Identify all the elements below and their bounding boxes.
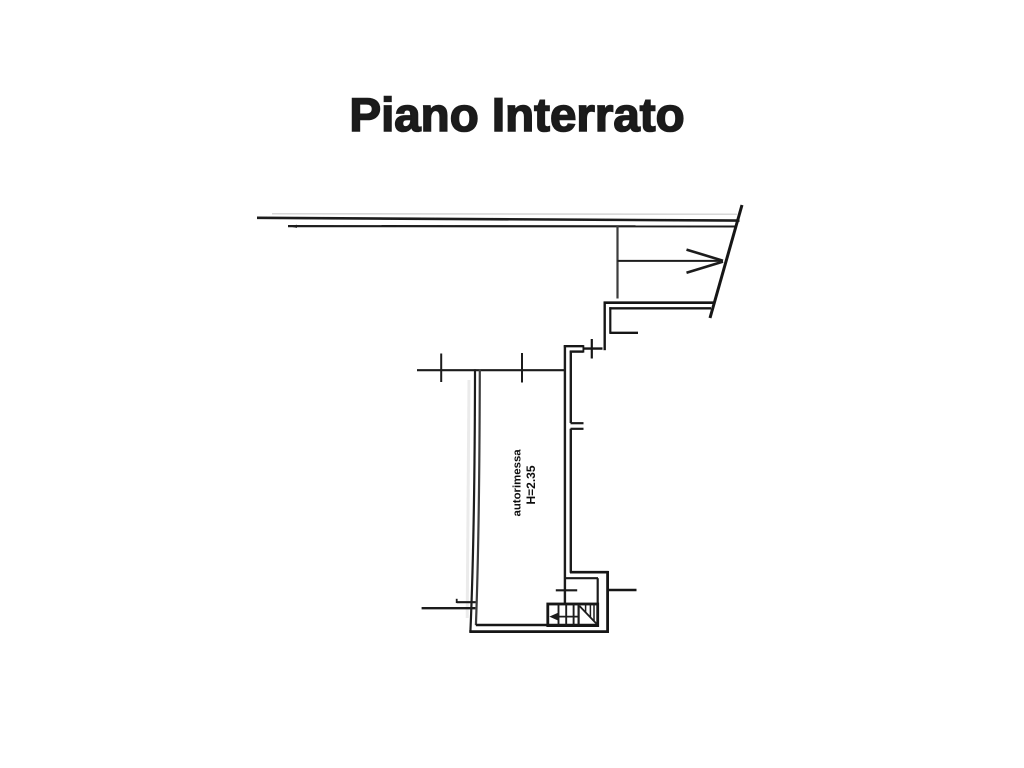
svg-text:H=2.35: H=2.35 bbox=[524, 465, 538, 504]
svg-text:Piano Interrato: Piano Interrato bbox=[349, 89, 684, 142]
svg-text:autorimessa: autorimessa bbox=[512, 449, 524, 517]
